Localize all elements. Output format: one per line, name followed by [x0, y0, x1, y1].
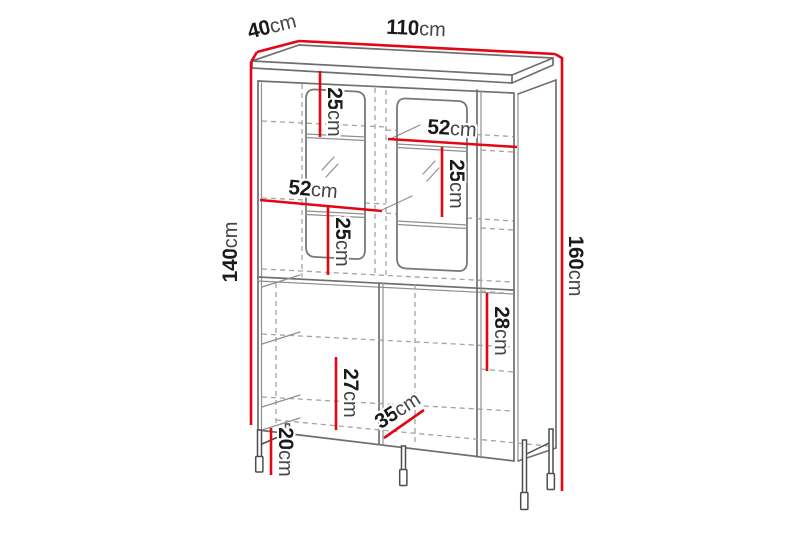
leg-left-front [256, 430, 263, 472]
dim-label-25-top-left: 25cm [322, 87, 346, 136]
dim-label-140: 140cm [219, 222, 243, 283]
leg-right-rear [547, 429, 554, 490]
legs [256, 424, 555, 510]
dim-label-25-left: 25cm [330, 217, 354, 266]
cabinet-drawing [0, 0, 800, 533]
leg-right-front [521, 440, 528, 510]
dim-label-110: 110cm [386, 16, 447, 43]
glass-reflection-icon [322, 157, 338, 177]
dim-label-28: 28cm [489, 306, 513, 355]
dimension-lines [251, 41, 562, 491]
dim-label-25-right: 25cm [444, 159, 468, 208]
dim-label-20: 20cm [273, 427, 297, 476]
dim-label-160: 160cm [563, 236, 587, 297]
dim-label-52-left: 52cm [287, 176, 338, 204]
dimension-diagram: 110cm 40cm 140cm 160cm 25cm 52cm 25cm 52… [0, 0, 800, 533]
dim-label-27: 27cm [338, 368, 362, 417]
glass-reflection-icon [423, 161, 439, 181]
dim-label-52-right: 52cm [427, 116, 478, 143]
leg-middle-front [400, 446, 407, 486]
